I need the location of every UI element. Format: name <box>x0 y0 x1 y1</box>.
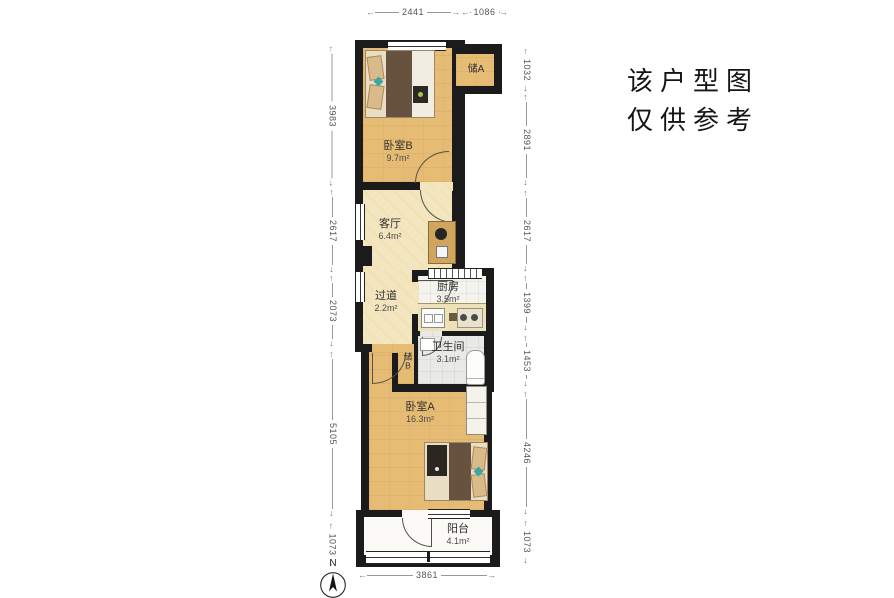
window-mullion <box>427 551 430 562</box>
window <box>428 509 470 519</box>
dimension-top-2: ← 1086 → <box>461 7 508 17</box>
room-area: 6.4m² <box>361 231 419 243</box>
room-area: 2.2m² <box>360 303 412 315</box>
stove <box>457 308 483 328</box>
room-label-storage-b: 储B <box>399 352 413 371</box>
dimension-right-2: ← 2891 → <box>522 93 532 187</box>
disclaimer-text: 该户型图 仅供参考 <box>627 62 759 140</box>
room-label-balcony: 阳台 4.1m² <box>430 522 486 548</box>
room-label-storage-a: 储A <box>458 63 494 76</box>
burner-icon <box>471 314 478 321</box>
wall-pillar <box>363 246 372 266</box>
blanket <box>449 443 471 500</box>
room-label-bathroom: 卫生间 3.1m² <box>416 340 480 366</box>
bed-sheet <box>412 51 434 117</box>
disclaimer-line-2: 仅供参考 <box>627 101 759 140</box>
room-label-kitchen: 厨房 3.5m² <box>420 280 476 306</box>
room-name: 储A <box>458 63 494 76</box>
door-opening <box>420 330 442 337</box>
dimension-right-1: ← 1032 → <box>522 47 532 93</box>
bed <box>424 442 488 501</box>
sink-basin <box>424 314 433 323</box>
room-area: 3.5m² <box>420 294 476 306</box>
room-name: 储B <box>402 352 413 371</box>
counter-item <box>449 313 457 321</box>
lamp-icon <box>418 92 423 97</box>
disclaimer-line-1: 该户型图 <box>627 62 759 101</box>
compass-icon <box>318 570 348 598</box>
toilet-tank <box>467 378 484 379</box>
dresser <box>427 445 447 476</box>
room-name: 卫生间 <box>416 340 480 354</box>
room-area: 3.1m² <box>416 354 480 366</box>
room-area: 16.3m² <box>388 414 452 426</box>
cabinet <box>428 221 456 264</box>
room-label-bedroom-a: 卧室A 16.3m² <box>388 400 452 426</box>
room-name: 卧室A <box>388 400 452 414</box>
room-name: 过道 <box>360 289 412 303</box>
wardrobe-divider <box>467 402 486 403</box>
dimension-value: 2617 <box>522 217 532 245</box>
dimension-left-3: ← 2073 → <box>328 274 338 348</box>
dimension-value: 3861 <box>413 570 441 580</box>
appliance-icon <box>436 246 448 258</box>
room-area: 4.1m² <box>430 536 486 548</box>
room-label-living: 客厅 6.4m² <box>361 217 419 243</box>
room-area: 9.7m² <box>368 153 428 165</box>
wardrobe <box>466 386 487 435</box>
kitchen-counter <box>418 303 486 331</box>
pillow <box>366 84 384 110</box>
dimension-value: 4246 <box>522 439 532 467</box>
knob-icon <box>435 467 439 471</box>
dimension-value: 1086 <box>470 7 498 17</box>
dimension-value: 3983 <box>328 102 338 130</box>
nightstand <box>413 86 428 103</box>
dimension-left-2: ← 2617 → <box>328 188 338 274</box>
dimension-value: 2891 <box>522 126 532 154</box>
dimension-value: 1073 <box>328 531 338 559</box>
room-name: 阳台 <box>430 522 486 536</box>
dimension-value: 2617 <box>328 217 338 245</box>
room-name: 厨房 <box>420 280 476 294</box>
dimension-value: 5105 <box>328 420 338 448</box>
dimension-left-1: ← 3983 → <box>328 45 338 188</box>
room-label-hallway: 过道 2.2m² <box>360 289 412 315</box>
window <box>428 268 482 279</box>
dimension-value: 2441 <box>399 7 427 17</box>
door-opening <box>402 510 430 518</box>
pillow <box>471 473 488 498</box>
room-name: 客厅 <box>361 217 419 231</box>
wardrobe-divider <box>467 418 486 419</box>
blanket <box>386 51 412 117</box>
dimension-right-3: ← 2617 → <box>522 189 532 273</box>
dimension-value: 1032 <box>522 56 532 84</box>
floor-plan-canvas: 储A 卧室B 9.7m² 客厅 6.4m² 过道 2.2m² 厨房 3.5m² … <box>0 0 894 598</box>
dimension-right-6: ← 4246 → <box>522 390 532 516</box>
dimension-top-1: ← 2441 → <box>366 7 460 17</box>
dimension-value: 1453 <box>522 347 532 375</box>
compass: N <box>314 558 352 598</box>
compass-north-label: N <box>329 558 336 569</box>
room-label-bedroom-b: 卧室B 9.7m² <box>368 139 428 165</box>
appliance-icon <box>435 228 447 240</box>
dimension-right-7: ← 1073 → <box>522 519 532 565</box>
dimension-left-4: ← 5105 → <box>328 350 338 518</box>
dimension-value: 1073 <box>522 528 532 556</box>
room-name: 卧室B <box>368 139 428 153</box>
pillow <box>366 55 384 81</box>
dimension-value: 2073 <box>328 297 338 325</box>
dimension-right-4: ← 1399 → <box>522 274 532 332</box>
sink-basin <box>434 314 443 323</box>
burner-icon <box>460 314 467 321</box>
dimension-right-5: ← 1453 → <box>522 334 532 388</box>
sink <box>421 308 445 328</box>
dimension-value: 1399 <box>522 289 532 317</box>
bed <box>365 50 435 118</box>
dimension-bottom-1: ← 3861 → <box>358 570 496 580</box>
